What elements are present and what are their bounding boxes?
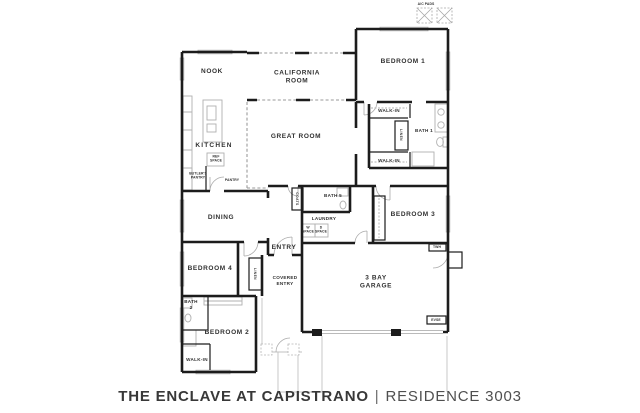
room-label-kitchen: KITCHEN <box>195 142 232 150</box>
ref-space-label: REF SPACE <box>209 155 224 164</box>
twh-label: TWH <box>433 245 441 249</box>
room-label-bath-2: BATH 2 <box>183 299 199 311</box>
floor-plan-page: A/C PADS NOOK CALIFORNIA ROOM BEDROOM 1 … <box>0 0 640 413</box>
room-label-entry: ENTRY <box>272 244 297 252</box>
room-label-butlers-pantry: BUTLER'S PANTRY <box>185 172 211 181</box>
room-label-pantry: PANTRY <box>225 178 239 182</box>
ac-pads-label: A/C PADS <box>418 2 435 6</box>
floor-plan-drawing <box>0 0 640 413</box>
room-label-bedroom-2: BEDROOM 2 <box>205 329 250 337</box>
room-label-laundry: LAUNDRY <box>312 216 336 222</box>
closet-label-linen-1: LINEN <box>399 129 403 141</box>
room-label-covered-entry: COVERED ENTRY <box>267 275 303 287</box>
room-label-garage: 3 BAY GARAGE <box>355 275 397 292</box>
closet-label-coats: COATS <box>295 192 299 205</box>
evse-label: EVSE <box>431 318 440 322</box>
plan-title: THE ENCLAVE AT CAPISTRANO|RESIDENCE 3003 <box>0 388 640 405</box>
room-label-bath-5: BATH 5 <box>324 193 342 199</box>
plan-title-divider: | <box>369 388 386 405</box>
dryer-space-label: D SPACE <box>315 226 327 235</box>
closet-label-linen-2: LINEN <box>253 268 257 280</box>
room-label-bedroom-1: BEDROOM 1 <box>381 58 426 66</box>
room-label-walk-in-top: WALK-IN <box>378 108 400 114</box>
washer-space-label: W SPACE <box>302 226 314 235</box>
room-label-nook: NOOK <box>201 68 223 76</box>
room-label-bedroom-3: BEDROOM 3 <box>391 211 436 219</box>
plan-title-project: THE ENCLAVE AT CAPISTRANO <box>118 388 369 405</box>
room-label-dining: DINING <box>208 214 234 222</box>
plan-title-residence: RESIDENCE 3003 <box>386 388 522 405</box>
room-label-walk-in-bottom: WALK-IN <box>378 158 400 164</box>
room-label-bath-1: BATH 1 <box>415 128 433 134</box>
room-label-california-room: CALIFORNIA ROOM <box>262 70 332 87</box>
room-label-bedroom-4: BEDROOM 4 <box>188 265 233 273</box>
room-label-walk-in-2: WALK-IN <box>186 357 208 363</box>
room-label-great-room: GREAT ROOM <box>271 133 321 141</box>
